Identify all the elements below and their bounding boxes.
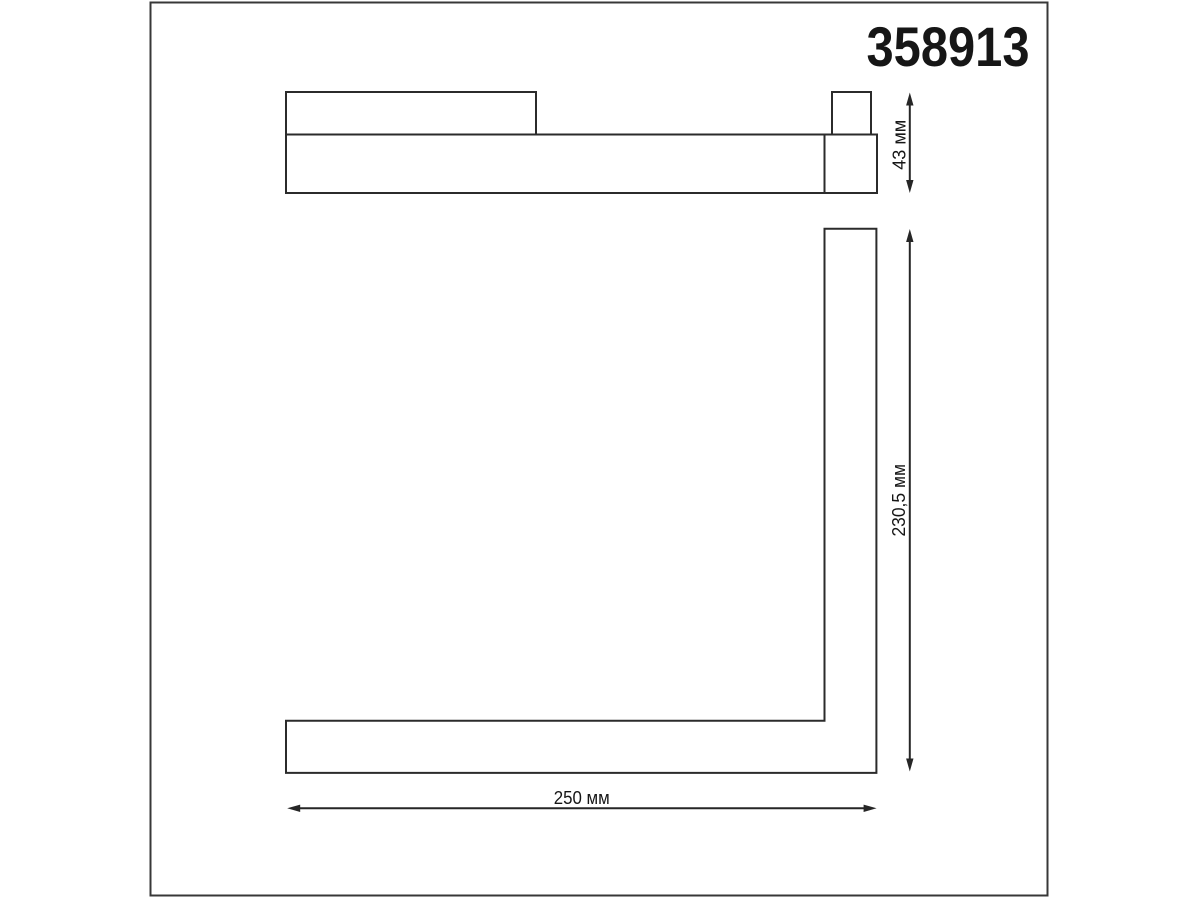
svg-text:230,5 мм: 230,5 мм bbox=[888, 464, 909, 537]
svg-text:358913: 358913 bbox=[867, 15, 1030, 78]
svg-text:250 мм: 250 мм bbox=[554, 787, 610, 808]
svg-text:43 мм: 43 мм bbox=[889, 120, 910, 170]
